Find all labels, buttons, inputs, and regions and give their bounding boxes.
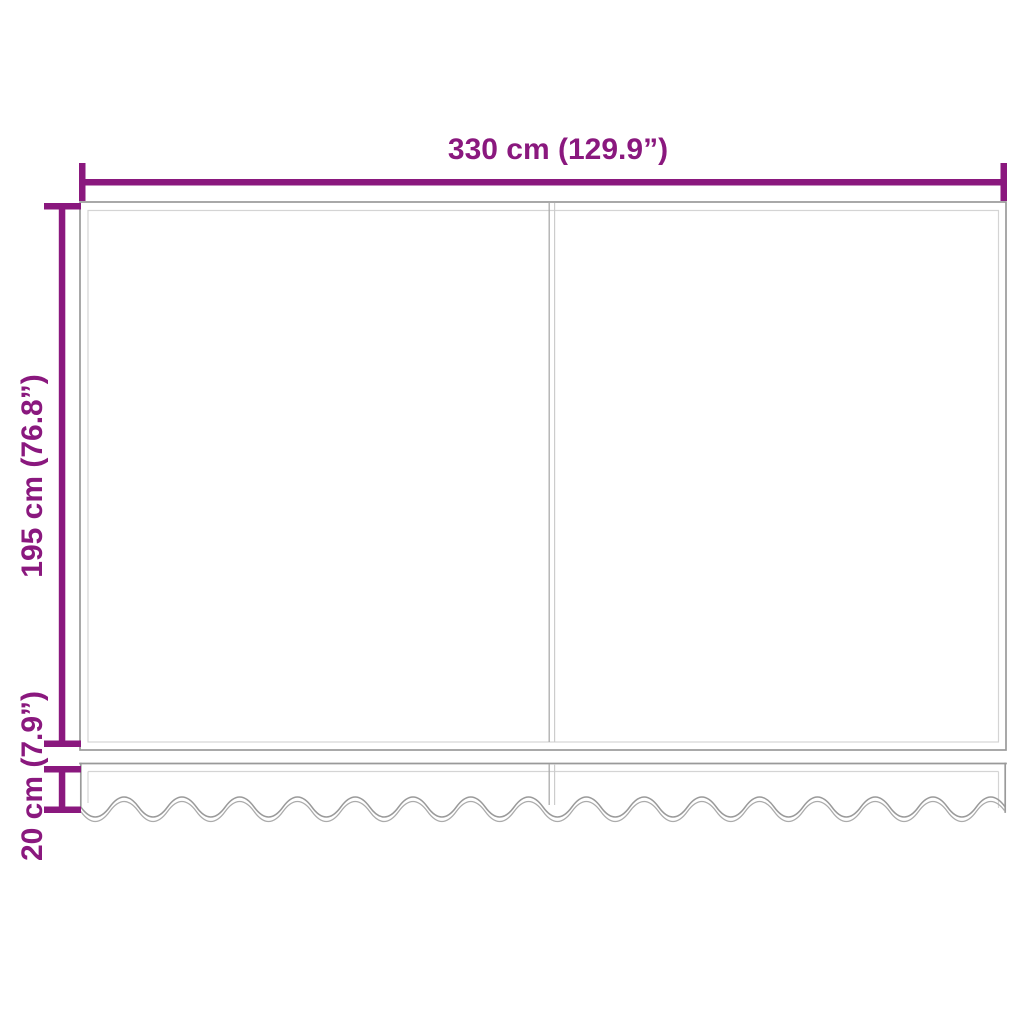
height-dimension-line [59, 203, 66, 747]
main-fabric-panel [80, 202, 1006, 750]
valance-wavy-edge-outer [81, 797, 1005, 817]
height-dimension-cap-top [44, 203, 81, 210]
width-dimension-label: 330 cm (129.9”) [448, 133, 668, 166]
width-dimension-line [79, 179, 1007, 186]
width-dimension: 330 cm (129.9”) [79, 133, 1007, 201]
valance-height-dimension: 20 cm (7.9”) [16, 691, 81, 861]
valance-height-dimension-label: 20 cm (7.9”) [16, 691, 49, 861]
valance-wavy-edge-inner [81, 802, 1005, 822]
valance-height-dimension-cap-bottom [44, 807, 81, 814]
diagram-canvas: 330 cm (129.9”) 195 cm (76.8”) 20 cm (7.… [0, 0, 1024, 1024]
valance-height-dimension-line [59, 766, 66, 813]
main-panel-outer-border [80, 202, 1006, 750]
height-dimension-label: 195 cm (76.8”) [16, 374, 49, 577]
width-dimension-cap-right [1001, 163, 1008, 201]
valance-height-dimension-cap-top [44, 766, 81, 773]
awning-dimension-diagram: 330 cm (129.9”) 195 cm (76.8”) 20 cm (7.… [0, 0, 1024, 1024]
height-dimension-cap-bottom [44, 741, 81, 748]
width-dimension-cap-left [79, 163, 86, 201]
valance-strip [80, 764, 1006, 822]
height-dimension: 195 cm (76.8”) [16, 203, 81, 747]
main-panel-inner-border [88, 211, 999, 743]
